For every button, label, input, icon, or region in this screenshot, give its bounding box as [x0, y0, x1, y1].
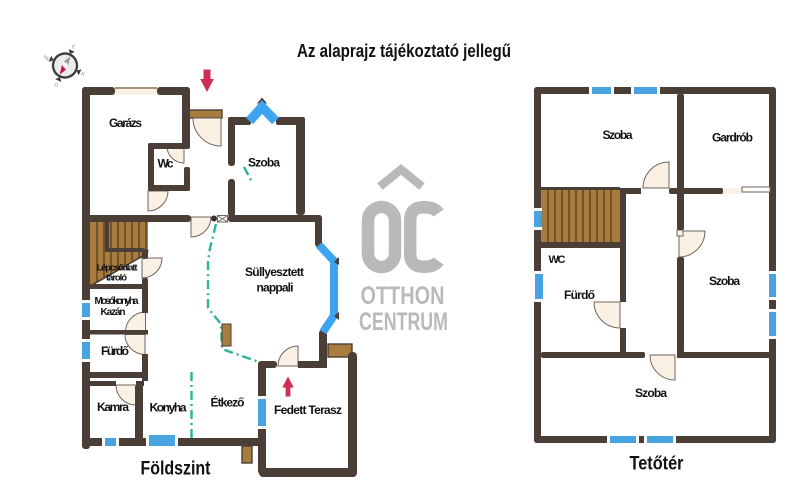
svg-text:É: É	[70, 43, 77, 51]
svg-text:Tetőtér: Tetőtér	[630, 454, 685, 475]
svg-text:Az alaprajz tájékoztató jelleg: Az alaprajz tájékoztató jellegű	[297, 41, 511, 61]
svg-text:Szoba: Szoba	[603, 128, 633, 142]
svg-text:WC: WC	[549, 254, 566, 266]
svg-text:Garázs: Garázs	[109, 116, 142, 130]
svg-text:Szoba: Szoba	[248, 156, 280, 170]
svg-text:Fürdő: Fürdő	[101, 344, 129, 358]
svg-text:Konyha: Konyha	[150, 401, 187, 415]
svg-text:Mosókonyha: Mosókonyha	[95, 296, 139, 307]
svg-text:D: D	[53, 82, 59, 89]
svg-text:Fedett Terasz: Fedett Terasz	[274, 403, 342, 417]
svg-text:Étkező: Étkező	[211, 395, 245, 410]
svg-text:Kamra: Kamra	[97, 400, 129, 414]
svg-text:Szoba: Szoba	[709, 274, 740, 288]
svg-text:nappali: nappali	[257, 281, 294, 295]
svg-text:Süllyesztett: Süllyesztett	[245, 265, 304, 279]
svg-text:K: K	[80, 71, 86, 78]
svg-text:Szoba: Szoba	[635, 386, 667, 400]
svg-text:OTTHON: OTTHON	[361, 282, 445, 310]
svg-text:Wc: Wc	[158, 157, 174, 171]
svg-text:Fürdő: Fürdő	[564, 288, 595, 302]
svg-text:Gardrób: Gardrób	[712, 131, 753, 145]
svg-text:tároló: tároló	[106, 273, 127, 284]
svg-text:Földszint: Földszint	[141, 459, 212, 480]
svg-text:Kazán: Kazán	[101, 307, 126, 318]
svg-text:CENTRUM: CENTRUM	[359, 308, 448, 336]
